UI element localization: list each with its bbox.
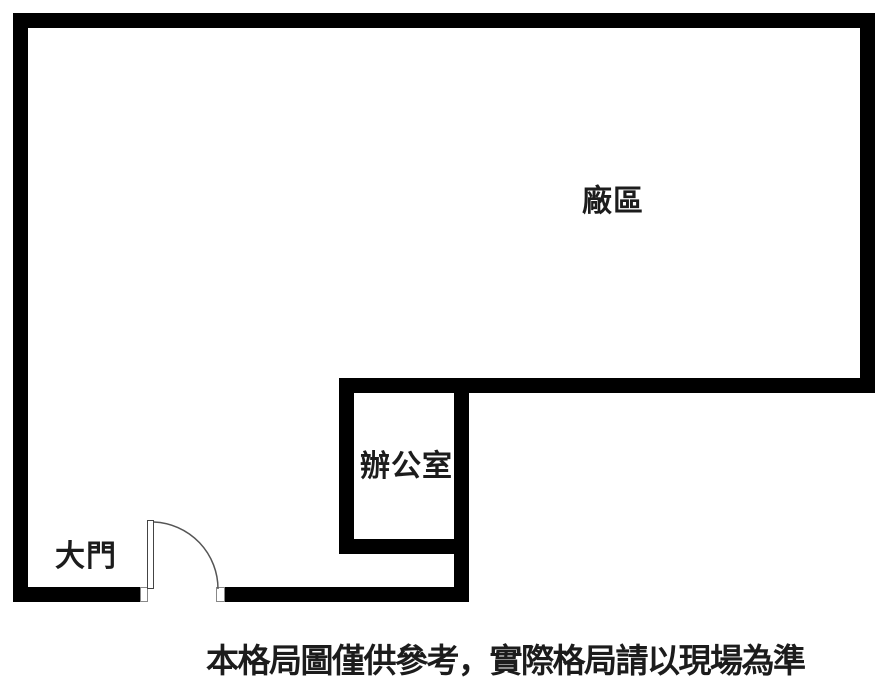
disclaimer-caption: 本格局圖僅供參考，實際格局請以現場為準: [206, 644, 805, 677]
office-wall-right: [454, 378, 469, 602]
factory-area-label: 廠區: [582, 187, 644, 217]
entrance-door-leaf: [147, 520, 154, 589]
office-wall-bottom: [339, 539, 469, 554]
wall-right: [860, 13, 875, 393]
wall-left: [13, 13, 28, 602]
office-wall-left: [339, 378, 354, 554]
wall-bottom-right: [225, 587, 469, 602]
wall-top: [13, 13, 875, 28]
office-label: 辦公室: [360, 452, 453, 482]
main-gate-label: 大門: [55, 542, 117, 572]
floor-plan: 廠區 辦公室 大門 本格局圖僅供參考，實際格局請以現場為準: [0, 0, 889, 697]
wall-bottom-left: [13, 587, 141, 602]
wall-factory-bottom: [339, 378, 875, 393]
